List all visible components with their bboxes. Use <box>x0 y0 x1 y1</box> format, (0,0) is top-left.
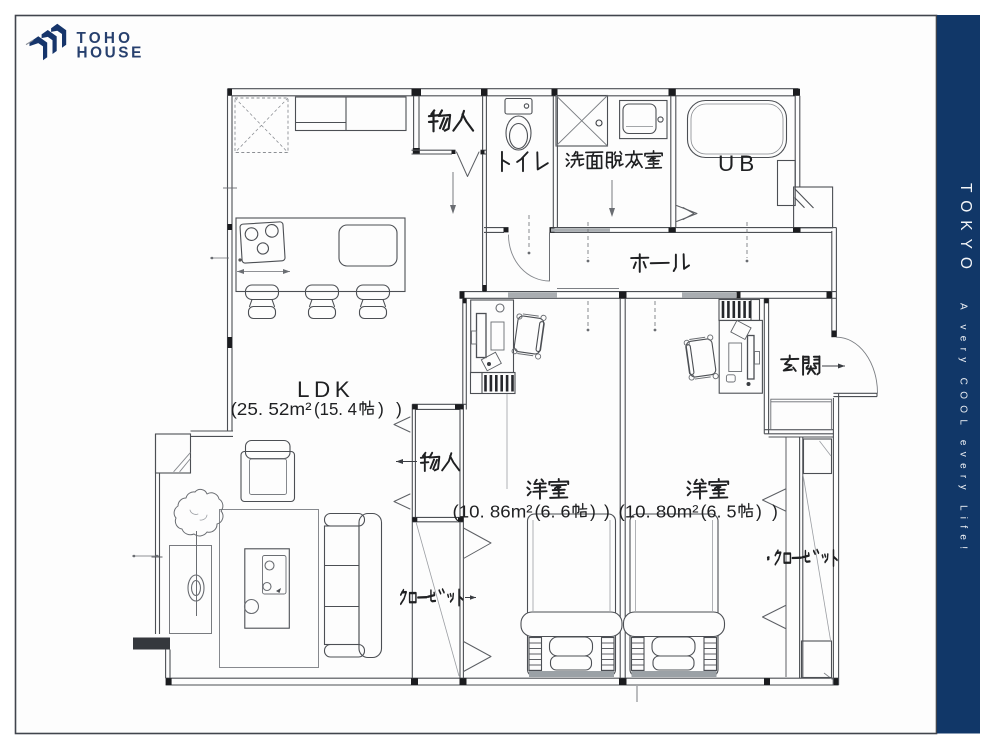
svg-text:(10. 80m²: (10. 80m² <box>619 502 699 522</box>
svg-text:(25. 52m²: (25. 52m² <box>231 399 312 419</box>
svg-text:): ) <box>772 502 778 522</box>
svg-text:): ) <box>604 502 610 522</box>
svg-text:HOUSE: HOUSE <box>77 45 144 62</box>
svg-text:A very COOL every Life!: A very COOL every Life! <box>958 303 969 555</box>
svg-text:TOKYO: TOKYO <box>957 183 974 277</box>
svg-text:(15. 4: (15. 4 <box>314 399 357 419</box>
svg-text:): ) <box>756 502 762 522</box>
svg-text:(6. 6: (6. 6 <box>535 502 571 522</box>
svg-text:): ) <box>378 399 384 419</box>
svg-text:(10. 86m²: (10. 86m² <box>453 502 533 522</box>
svg-text:): ) <box>396 399 402 419</box>
svg-text:): ) <box>590 502 596 522</box>
svg-text:(6. 5: (6. 5 <box>701 502 737 522</box>
svg-text:UB: UB <box>718 151 759 176</box>
